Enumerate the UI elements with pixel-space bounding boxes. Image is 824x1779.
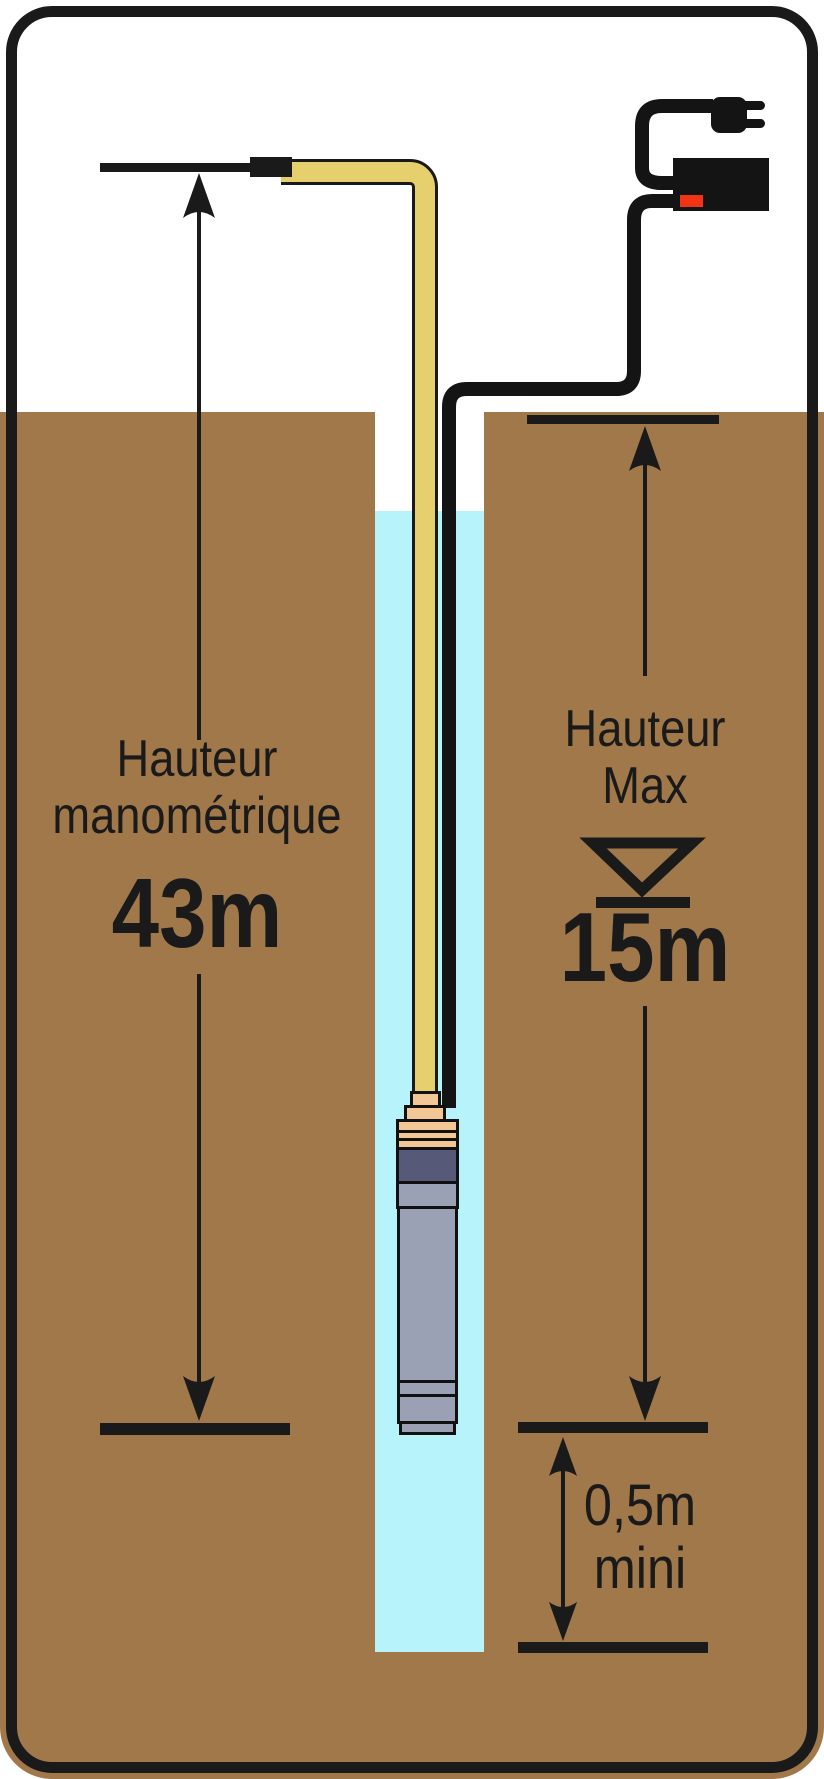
datum-bar-well-bottom xyxy=(518,1642,708,1653)
power-plug-icon xyxy=(711,97,747,133)
pump-motor-section xyxy=(396,1147,459,1185)
pump-lower-band xyxy=(397,1394,458,1424)
plug-prong-icon xyxy=(745,101,765,110)
arrowhead-down-icon xyxy=(629,1376,661,1421)
label-line: Max xyxy=(515,758,776,815)
label-line: 0,5m xyxy=(553,1474,727,1537)
label-0-5m-mini: 0,5m mini xyxy=(540,1474,740,1600)
datum-bar-pump-level-left xyxy=(100,1423,290,1435)
pump-upper-band xyxy=(396,1181,459,1209)
label-line: Hauteur xyxy=(40,731,353,788)
value-15m: 15m xyxy=(495,896,795,998)
value-text: 15m xyxy=(515,896,776,998)
water-level-icon xyxy=(593,843,692,890)
arrowhead-down-icon xyxy=(549,1602,577,1641)
pump-main-body xyxy=(397,1206,458,1384)
datum-bar-pump-level-right xyxy=(518,1422,708,1433)
power-indicator-light xyxy=(680,195,703,207)
pump-base xyxy=(399,1421,456,1435)
diagram-canvas: Hauteur manométrique 43m Hauteur Max 15m… xyxy=(0,0,824,1779)
arrowhead-up-icon xyxy=(549,1437,577,1476)
pipe-spout xyxy=(250,157,292,177)
label-line: mini xyxy=(553,1537,727,1600)
datum-bar-ground-level xyxy=(527,415,719,424)
plug-prong-icon xyxy=(745,119,765,128)
label-line: manométrique xyxy=(40,788,353,845)
label-hauteur-manometrique: Hauteur manométrique xyxy=(17,731,377,845)
label-hauteur-max: Hauteur Max xyxy=(495,701,795,815)
value-text: 43m xyxy=(40,862,353,964)
label-line: Hauteur xyxy=(515,701,776,758)
arrowhead-up-icon xyxy=(629,426,661,471)
arrowhead-down-icon xyxy=(183,1376,215,1421)
arrowhead-up-icon xyxy=(183,173,215,218)
value-43m: 43m xyxy=(17,862,377,964)
